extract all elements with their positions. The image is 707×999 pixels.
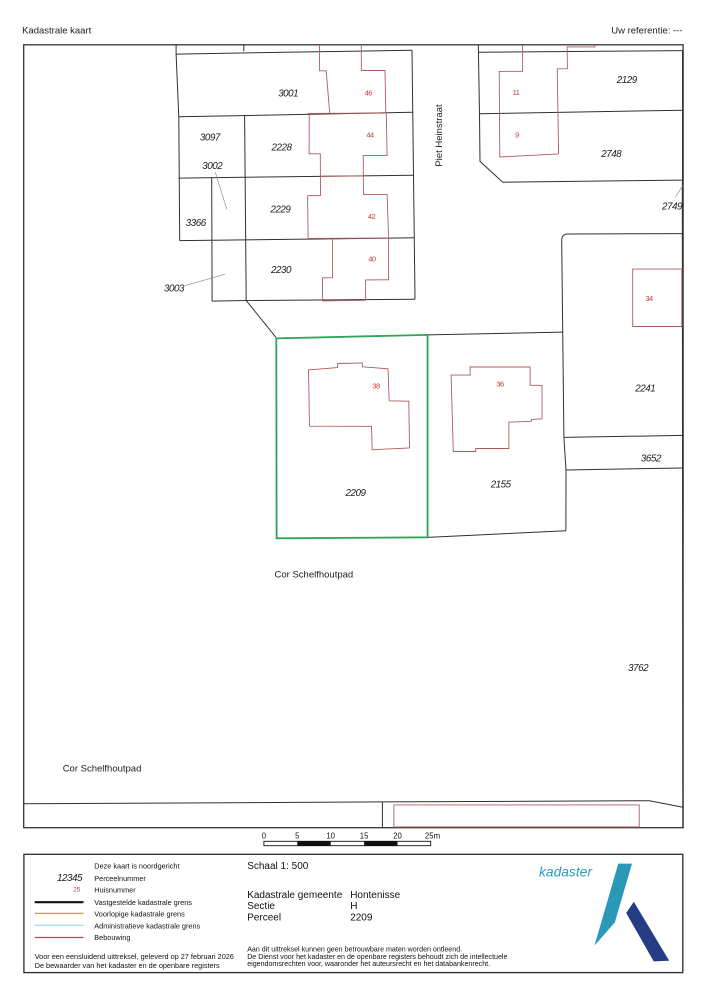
svg-text:25: 25 (73, 887, 81, 894)
svg-text:Sectie: Sectie (247, 901, 275, 912)
svg-text:kadaster: kadaster (539, 865, 593, 880)
svg-text:36: 36 (496, 379, 504, 388)
svg-text:H: H (350, 901, 357, 912)
svg-text:3652: 3652 (641, 454, 662, 465)
svg-text:Deze kaart is noordgericht: Deze kaart is noordgericht (94, 862, 179, 871)
svg-text:34: 34 (645, 294, 653, 303)
svg-text:2241: 2241 (634, 384, 655, 395)
svg-text:3366: 3366 (186, 218, 207, 229)
svg-text:3097: 3097 (200, 132, 221, 143)
svg-text:Administratieve kadastrale gre: Administratieve kadastrale grens (94, 921, 200, 930)
svg-text:Perceel: Perceel (247, 913, 281, 924)
svg-text:10: 10 (326, 832, 335, 841)
svg-text:2209: 2209 (345, 488, 367, 499)
svg-text:2749: 2749 (661, 202, 683, 213)
svg-text:3001: 3001 (278, 88, 298, 99)
svg-text:2228: 2228 (271, 143, 293, 154)
svg-text:Vastgestelde kadastrale grens: Vastgestelde kadastrale grens (94, 898, 192, 907)
svg-text:Cor Schelfhoutpad: Cor Schelfhoutpad (63, 764, 142, 775)
svg-text:Uw referentie: ---: Uw referentie: --- (611, 26, 682, 37)
svg-text:Kadastrale gemeente: Kadastrale gemeente (247, 890, 343, 901)
svg-text:38: 38 (372, 382, 380, 391)
svg-text:Voor een eensluidend uittrekse: Voor een eensluidend uittreksel, gelever… (35, 952, 234, 961)
svg-text:20: 20 (393, 832, 402, 841)
svg-text:9: 9 (515, 130, 519, 139)
svg-text:11: 11 (513, 88, 520, 97)
svg-text:5: 5 (295, 832, 300, 841)
svg-text:Kadastrale kaart: Kadastrale kaart (22, 25, 92, 36)
svg-text:2229: 2229 (269, 205, 291, 216)
svg-text:Schaal 1: 500: Schaal 1: 500 (247, 861, 309, 872)
svg-text:Piet Heinstraat: Piet Heinstraat (434, 104, 445, 167)
svg-text:2129: 2129 (616, 75, 638, 86)
svg-text:Cor Schelfhoutpad: Cor Schelfhoutpad (275, 570, 354, 581)
svg-text:2209: 2209 (350, 913, 373, 924)
svg-text:Huisnummer: Huisnummer (94, 886, 136, 895)
svg-text:0: 0 (262, 832, 267, 841)
svg-text:eigendomsrechten voor, waarond: eigendomsrechten voor, waaronder het aut… (247, 960, 490, 968)
svg-text:40: 40 (368, 254, 376, 263)
svg-text:Bebouwing: Bebouwing (94, 933, 130, 942)
svg-text:De bewaarder van het kadaster: De bewaarder van het kadaster en de open… (35, 961, 220, 970)
svg-text:42: 42 (368, 212, 376, 221)
svg-text:25m: 25m (425, 832, 440, 841)
svg-text:2748: 2748 (600, 149, 622, 160)
svg-text:Perceelnummer: Perceelnummer (94, 874, 146, 883)
svg-text:3762: 3762 (628, 663, 649, 674)
svg-text:2155: 2155 (490, 480, 512, 491)
svg-text:15: 15 (360, 832, 369, 841)
svg-text:46: 46 (365, 88, 373, 97)
svg-text:12345: 12345 (57, 873, 83, 884)
svg-text:3003: 3003 (164, 283, 185, 294)
svg-text:44: 44 (366, 131, 374, 140)
svg-text:3002: 3002 (202, 161, 223, 172)
svg-text:Voorlopige kadastrale grens: Voorlopige kadastrale grens (94, 910, 185, 919)
svg-text:2230: 2230 (270, 265, 292, 276)
svg-text:Hontenisse: Hontenisse (350, 890, 400, 901)
